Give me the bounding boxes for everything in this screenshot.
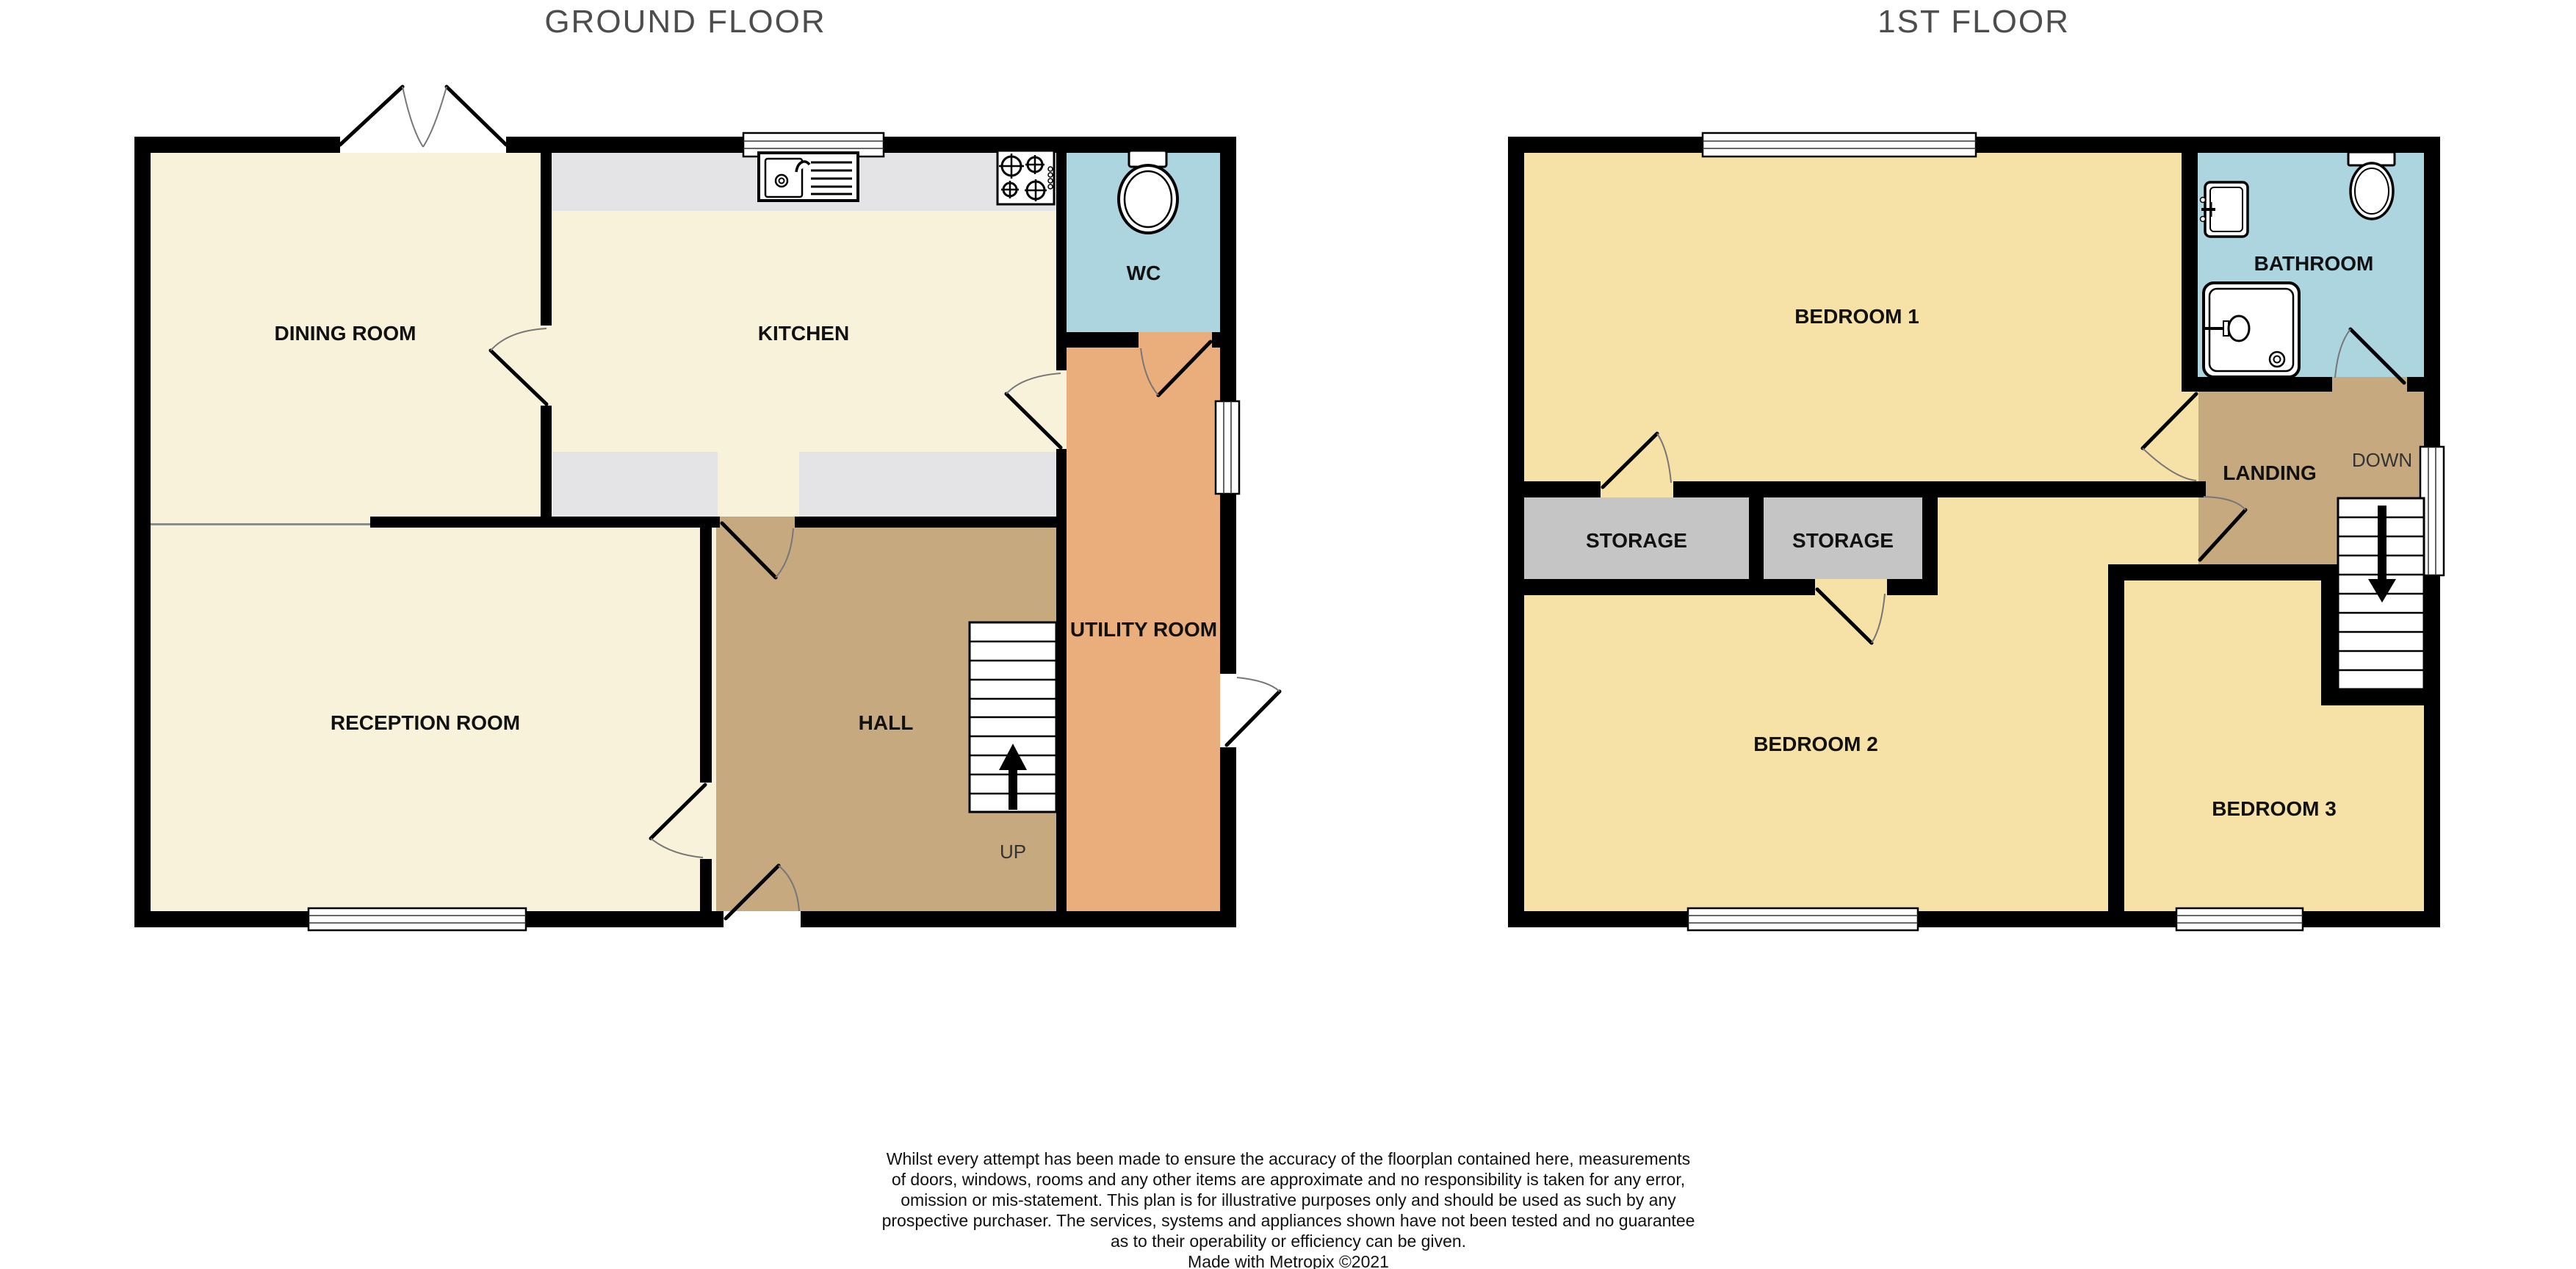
floorplan-page: GROUND FLOOR xyxy=(0,0,2576,1269)
stairs-down-label: DOWN xyxy=(2352,449,2412,471)
shower-icon xyxy=(2204,283,2299,377)
disclaimer-line: prospective purchaser. The services, sys… xyxy=(882,1211,1695,1230)
kitchen-counter-bottom-left xyxy=(552,452,718,517)
room-label-bedroom2: BEDROOM 2 xyxy=(1753,733,1878,755)
ground-floor: GROUND FLOOR xyxy=(134,4,1280,930)
room-label-storage-left: STORAGE xyxy=(1586,529,1687,552)
disclaimer-credit: Made with Metropix ©2021 xyxy=(1188,1252,1389,1269)
bath-sink-icon xyxy=(2201,182,2248,237)
bedroom2-window xyxy=(1688,908,1918,930)
disclaimer-line: as to their operability or efficiency ca… xyxy=(1111,1232,1466,1251)
bedroom1-window xyxy=(1703,133,1976,157)
room-label-kitchen: KITCHEN xyxy=(758,322,849,345)
french-door-opening xyxy=(340,137,506,153)
bedroom3-window xyxy=(2176,908,2303,930)
bath-toilet-icon xyxy=(2348,152,2395,219)
room-label-wc: WC xyxy=(1127,262,1161,284)
dining-reception-divider-line xyxy=(151,523,370,525)
utility-window xyxy=(1216,401,1239,494)
room-label-hall: HALL xyxy=(859,711,914,734)
room-label-bedroom1: BEDROOM 1 xyxy=(1794,305,1919,328)
reception-window xyxy=(309,908,526,930)
room-label-bedroom3: BEDROOM 3 xyxy=(2212,797,2337,820)
room-label-landing: LANDING xyxy=(2223,461,2317,484)
stairs-up-label: UP xyxy=(1000,841,1026,863)
floor-title-first: 1ST FLOOR xyxy=(1877,4,2070,40)
kitchen-sink-icon xyxy=(759,153,858,201)
stove-icon xyxy=(997,151,1054,204)
room-label-reception: RECEPTION ROOM xyxy=(331,711,520,734)
first-floor: 1ST FLOOR xyxy=(1508,4,2444,930)
stairs-up xyxy=(970,622,1056,812)
room-label-dining: DINING ROOM xyxy=(275,322,416,345)
disclaimer-line: of doors, windows, rooms and any other i… xyxy=(892,1170,1685,1189)
kitchen-counter-bottom-right xyxy=(799,452,1056,517)
room-label-bathroom: BATHROOM xyxy=(2254,252,2374,275)
room-label-storage-right: STORAGE xyxy=(1792,529,1894,552)
front-door-opening xyxy=(724,911,801,927)
floorplan-image: GROUND FLOOR xyxy=(0,0,2576,1269)
room-label-utility: UTILITY ROOM xyxy=(1070,618,1217,641)
floor-title-ground: GROUND FLOOR xyxy=(544,4,826,40)
disclaimer-line: omission or mis-statement. This plan is … xyxy=(901,1190,1676,1209)
disclaimer: Whilst every attempt has been made to en… xyxy=(882,1149,1695,1269)
stairs-down xyxy=(2338,498,2424,689)
disclaimer-line: Whilst every attempt has been made to en… xyxy=(887,1149,1690,1168)
